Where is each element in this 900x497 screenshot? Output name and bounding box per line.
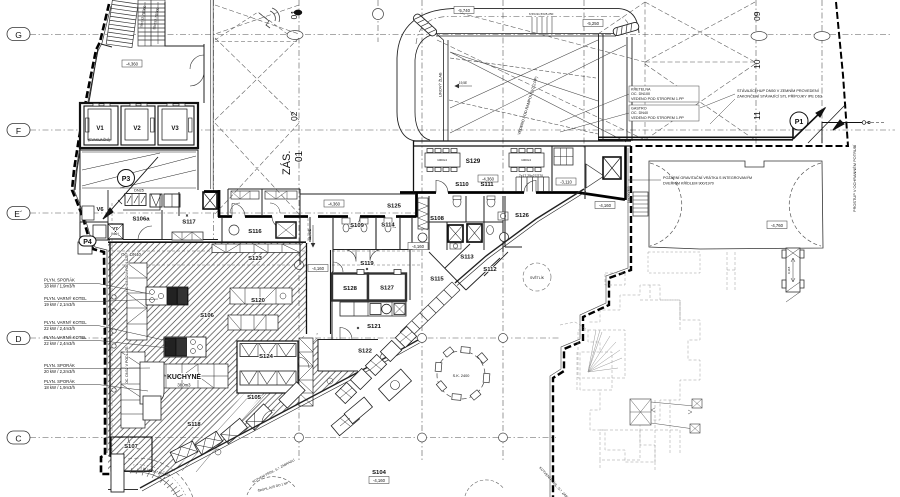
svg-text:S113: S113 (460, 255, 474, 261)
svg-text:S106: S106 (200, 313, 214, 319)
svg-text:DVEŘNÍM KŘÍDLEM 900/1970: DVEŘNÍM KŘÍDLEM 900/1970 (663, 181, 714, 186)
svg-text:D: D (15, 334, 21, 344)
svg-text:S126: S126 (515, 213, 529, 219)
svg-text:V1: V1 (96, 126, 104, 132)
svg-text:S112: S112 (483, 267, 497, 273)
svg-text:S121: S121 (367, 324, 381, 330)
svg-text:10: 10 (752, 59, 762, 69)
svg-text:KUCHYNĖ: KUCHYNĖ (167, 372, 201, 381)
svg-text:S123: S123 (248, 256, 262, 262)
svg-text:-5,740: -5,740 (458, 8, 471, 13)
svg-text:DN25: DN25 (134, 189, 144, 193)
svg-text:S119: S119 (360, 261, 374, 267)
svg-text:KŘETELNA: KŘETELNA (631, 87, 651, 92)
svg-text:V3: V3 (171, 126, 179, 132)
svg-text:S127: S127 (380, 286, 394, 292)
svg-text:P3: P3 (122, 176, 131, 183)
svg-text:V2: V2 (133, 126, 141, 132)
svg-text:-4,160: -4,160 (312, 266, 325, 271)
svg-text:11: 11 (752, 111, 762, 120)
svg-text:OC. DN32 V PODLAZE: OC. DN32 V PODLAZE (125, 346, 129, 384)
svg-text:P1: P1 (795, 119, 804, 126)
svg-text:S109: S109 (350, 223, 364, 229)
svg-text:F: F (16, 126, 21, 136)
svg-text:-4,160: -4,160 (373, 478, 386, 483)
svg-text:GASTRO: GASTRO (631, 107, 647, 111)
svg-text:S111: S111 (480, 182, 494, 188)
svg-text:S108: S108 (430, 216, 444, 222)
svg-text:22 kW / 2,4m3/h: 22 kW / 2,4m3/h (44, 341, 76, 346)
svg-text:19,5E: 19,5E (459, 81, 467, 85)
svg-text:18 kW / 1,9m3/h: 18 kW / 1,9m3/h (44, 284, 76, 289)
svg-text:01: 01 (294, 150, 305, 162)
svg-text:1000x4: 1000x4 (437, 158, 447, 162)
svg-text:(hav.): (hav.) (111, 232, 119, 236)
svg-text:G: G (15, 30, 22, 40)
svg-text:S106a: S106a (132, 217, 150, 223)
svg-text:LINOVÝ ŽLAB: LINOVÝ ŽLAB (438, 72, 443, 97)
svg-text:20 kW / 2,2m3/h: 20 kW / 2,2m3/h (44, 369, 76, 374)
svg-text:PLYN. SPORÁK: PLYN. SPORÁK (44, 363, 75, 368)
svg-text:7x17,25x27/270: 7x17,25x27/270 (519, 174, 543, 178)
svg-text:S128: S128 (343, 286, 357, 292)
svg-text:S124: S124 (259, 354, 273, 360)
svg-text:-3,110: -3,110 (560, 180, 572, 185)
svg-text:V6: V6 (96, 207, 104, 213)
svg-text:C: C (15, 434, 21, 444)
svg-text:ZAKONČENÍ STÁVAJÍCÍ STL PŘÍPOJ: ZAKONČENÍ STÁVAJÍCÍ STL PŘÍPOJKY IPE D63 (737, 94, 822, 99)
svg-text:SVĚTLÍK: SVĚTLÍK (530, 275, 545, 280)
svg-text:PLYN. VARNÝ KOTEL: PLYN. VARNÝ KOTEL (44, 320, 87, 325)
svg-text:ZÁS.: ZÁS. (280, 151, 293, 175)
svg-text:S129: S129 (466, 158, 481, 165)
svg-text:-5,250: -5,250 (587, 21, 600, 26)
svg-text:S107: S107 (124, 444, 138, 450)
svg-text:S118: S118 (187, 422, 201, 428)
svg-text:PLYN. VARNÝ KOTEL: PLYN. VARNÝ KOTEL (44, 296, 87, 301)
svg-text:OC. DN100: OC. DN100 (631, 92, 650, 96)
svg-text:S122: S122 (358, 349, 372, 355)
svg-text:1000x4: 1000x4 (521, 158, 531, 162)
svg-text:VEDENO POD STROPEM 1.PP: VEDENO POD STROPEM 1.PP (631, 97, 684, 101)
svg-text:-4,360: -4,360 (482, 177, 495, 182)
svg-text:P4: P4 (83, 239, 92, 246)
svg-text:-4,760: -4,760 (771, 223, 784, 228)
svg-text:6,5%/11,5%/5,250: 6,5%/11,5%/5,250 (529, 12, 554, 16)
svg-text:STÁVAJÍCÍ HUP DN50 V ZEMNÍM PR: STÁVAJÍCÍ HUP DN50 V ZEMNÍM PROVEDENÍ (737, 89, 820, 93)
svg-text:PROSTUP V OCHRANNÉM POTRUBÍ: PROSTUP V OCHRANNÉM POTRUBÍ (852, 144, 857, 212)
svg-text:-4,160: -4,160 (599, 203, 612, 208)
svg-text:S117: S117 (182, 220, 196, 226)
svg-text:18 kW / 1,9m3/h: 18 kW / 1,9m3/h (44, 385, 76, 390)
svg-text:(EVAKUAČNÍ): (EVAKUAČNÍ) (88, 137, 110, 142)
svg-text:S110: S110 (455, 182, 469, 188)
svg-text:VEDENO POD STROPEM 1.PP: VEDENO POD STROPEM 1.PP (631, 116, 684, 120)
svg-text:-4,360: -4,360 (328, 202, 341, 207)
svg-text:POŽÁRNÍ GRAVITAČNÍ VRÁTKA S IN: POŽÁRNÍ GRAVITAČNÍ VRÁTKA S INTEGROVANÝM (663, 175, 752, 180)
svg-text:-4,160: -4,160 (412, 244, 425, 249)
svg-text:11,47E: 11,47E (308, 228, 312, 240)
svg-text:S116: S116 (248, 229, 262, 235)
svg-text:S105: S105 (247, 395, 261, 401)
svg-text:S104: S104 (372, 470, 386, 476)
svg-text:14x250/300: 14x250/300 (627, 186, 631, 203)
svg-text:09: 09 (752, 11, 762, 21)
svg-text:0,118: 0,118 (787, 266, 791, 274)
svg-text:S114: S114 (381, 223, 395, 229)
svg-text:22 kW / 2,4m3/h: 22 kW / 2,4m3/h (44, 326, 76, 331)
svg-text:V7: V7 (112, 226, 118, 231)
svg-text:PLYN. SPORÁK: PLYN. SPORÁK (44, 379, 75, 384)
svg-text:19 kW / 2,1m3/h: 19 kW / 2,1m3/h (44, 302, 76, 307)
svg-text:PLYN. VARNÝ KOTEL: PLYN. VARNÝ KOTEL (44, 335, 87, 340)
svg-text:S115: S115 (430, 277, 444, 283)
svg-text:S125: S125 (387, 204, 401, 210)
svg-text:S120: S120 (251, 298, 265, 304)
svg-text:OC. DN32 V PODLAZE: OC. DN32 V PODLAZE (125, 254, 129, 292)
svg-text:02: 02 (289, 111, 299, 121)
svg-text:OC. DN40: OC. DN40 (631, 111, 648, 115)
svg-text:E´: E´ (14, 209, 23, 219)
svg-text:PLYN. SPORÁK: PLYN. SPORÁK (44, 278, 75, 283)
svg-text:S.K. 2400: S.K. 2400 (453, 374, 470, 378)
svg-text:380m3: 380m3 (177, 383, 191, 388)
svg-text:-4,360: -4,360 (126, 62, 139, 67)
